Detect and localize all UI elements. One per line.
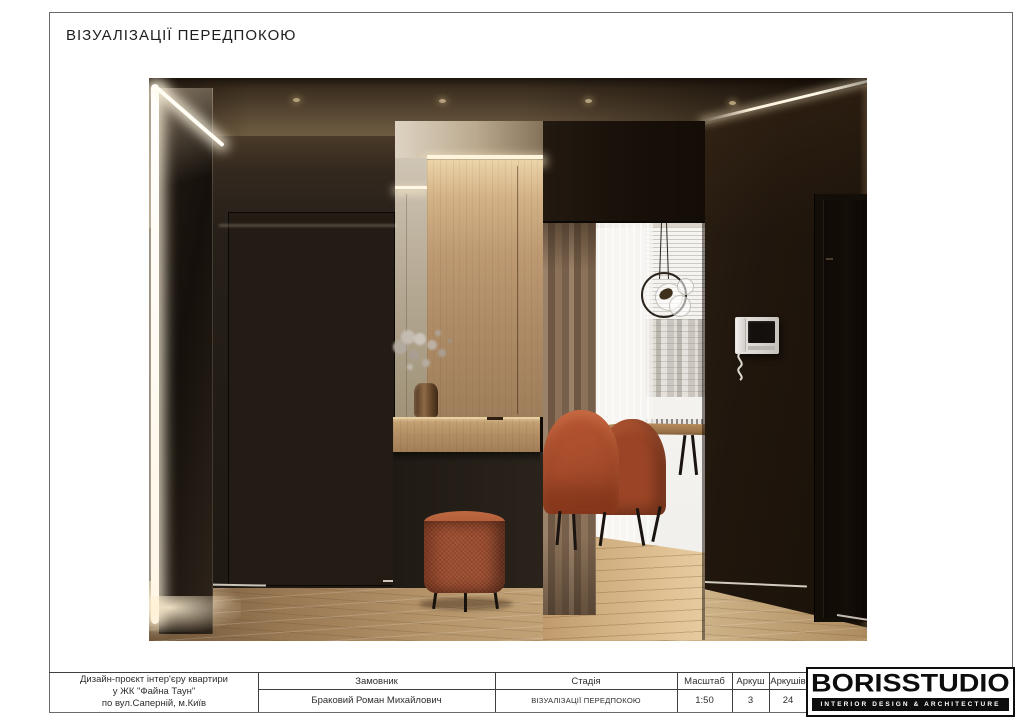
pendant-glass-bubble	[677, 278, 694, 295]
scale-value: 1:50	[678, 690, 731, 711]
console-shadow	[393, 452, 540, 462]
oak-wall-panel	[427, 160, 543, 417]
ceiling-soffit	[395, 121, 543, 158]
ceiling-spotlight	[293, 98, 300, 102]
doorway-jamb	[702, 223, 705, 640]
ceiling-spotlight	[439, 99, 446, 103]
wall-seam	[406, 194, 407, 420]
intercom-screen	[748, 321, 775, 343]
project-line-2: у ЖК "Файна Таун"	[113, 686, 196, 698]
stage-header: Стадія	[496, 673, 676, 689]
sheets-total-value: 24	[770, 690, 806, 711]
wood-panel-led-strip	[427, 155, 543, 159]
project-line-1: Дизайн-проєкт інтер'єру квартири	[80, 674, 228, 686]
left-dark-wall	[211, 136, 401, 588]
studio-logo-name: BORISSTUDIO	[811, 670, 1010, 697]
floating-console	[393, 417, 540, 452]
sheet-number-value: 3	[733, 690, 768, 711]
mirror-led-strip	[151, 84, 159, 624]
terracotta-pouf-body	[424, 521, 505, 593]
project-description-cell: Дизайн-проєкт інтер'єру квартири у ЖК "Ф…	[50, 673, 258, 711]
ceiling-spotlight	[585, 99, 592, 103]
customer-header: Замовник	[259, 673, 494, 689]
mirror-floor-glow	[149, 596, 241, 632]
dried-flowers	[401, 330, 415, 344]
oak-panel-groove	[517, 166, 518, 414]
dining-room-doorway	[543, 221, 705, 640]
intercom-buttons	[748, 346, 775, 350]
door-handle	[826, 258, 833, 260]
light-wall-strip	[395, 158, 427, 417]
ceiling-spotlight	[729, 101, 736, 105]
light-wall-led-strip	[395, 186, 427, 189]
page-title: ВІЗУАЛІЗАЦІЇ ПЕРЕДПОКОЮ	[66, 27, 296, 44]
left-cove-glow	[219, 224, 397, 227]
pendant-glass-bubble	[669, 295, 691, 317]
studio-logo-tagline: INTERIOR DESIGN & ARCHITECTURE	[812, 698, 1009, 711]
project-line-3: по вул.Саперній, м.Київ	[102, 698, 206, 710]
console-handle	[487, 417, 503, 420]
full-height-mirror	[159, 88, 213, 634]
wall-above-doorway	[543, 121, 705, 222]
stage-value: ВІЗУАЛІЗАЦІЇ ПЕРЕДПОКОЮ	[496, 690, 676, 711]
dining-chair	[543, 410, 619, 514]
city-view	[646, 319, 705, 397]
sheet-number-header: Аркуш	[733, 673, 768, 689]
concealed-door	[228, 212, 395, 586]
glass-vase	[414, 383, 438, 417]
scale-header: Масштаб	[678, 673, 731, 689]
hallway-render	[149, 78, 867, 641]
intercom-handset	[736, 318, 746, 352]
customer-value: Браковий Роман Михайлович	[259, 690, 494, 711]
studio-logo: BORISSTUDIO INTERIOR DESIGN & ARCHITECTU…	[806, 667, 1015, 717]
sheets-total-header: Аркушів	[770, 673, 806, 689]
entrance-door	[823, 200, 867, 618]
intercom-cord	[734, 353, 746, 381]
